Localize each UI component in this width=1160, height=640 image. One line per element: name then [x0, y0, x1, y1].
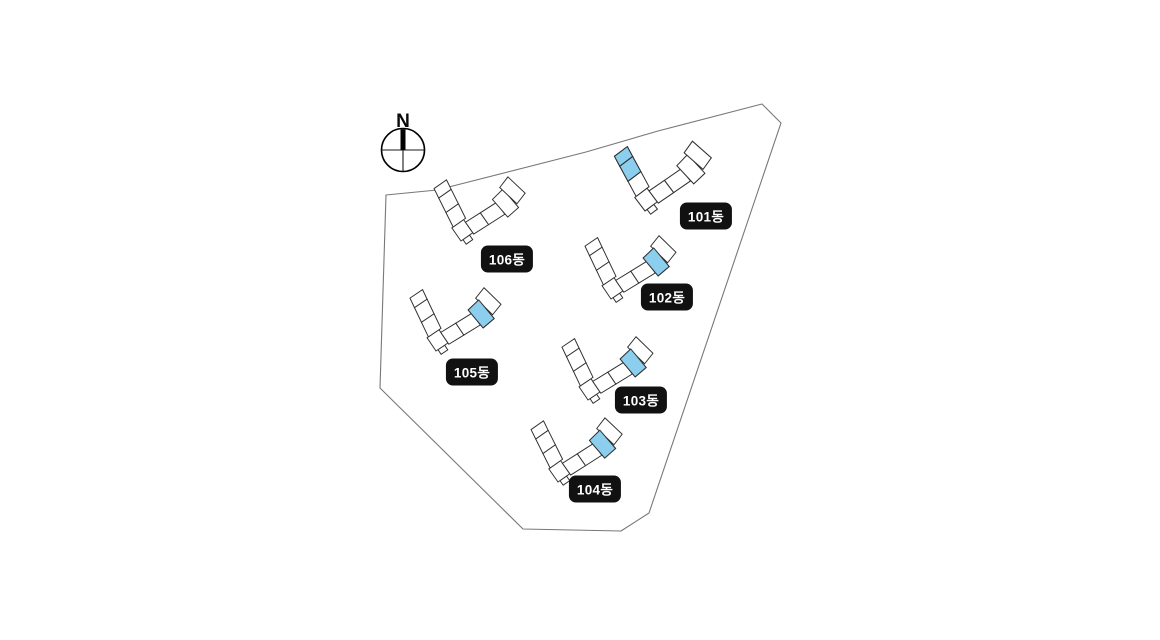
compass-north-label: N [396, 112, 410, 131]
site-plan-drawing [0, 0, 1160, 640]
compass-icon [382, 129, 425, 172]
building-105[interactable] [403, 258, 506, 357]
building-104[interactable] [525, 388, 628, 488]
building-106-footprint [428, 147, 531, 247]
site-plan: N 101동 102동 103동 104동 105동 106동 [0, 0, 1160, 640]
building-105-footprint [403, 258, 506, 357]
building-label-106[interactable]: 106동 [481, 246, 533, 273]
building-label-104[interactable]: 104동 [569, 476, 621, 503]
building-label-105[interactable]: 105동 [446, 359, 498, 386]
compass-north-needle [401, 130, 406, 151]
building-101[interactable] [608, 110, 718, 217]
building-label-101[interactable]: 101동 [680, 203, 732, 230]
building-label-103[interactable]: 103동 [615, 387, 667, 414]
building-104-footprint [525, 388, 628, 488]
building-label-102[interactable]: 102동 [641, 284, 693, 311]
building-106[interactable] [428, 147, 531, 247]
